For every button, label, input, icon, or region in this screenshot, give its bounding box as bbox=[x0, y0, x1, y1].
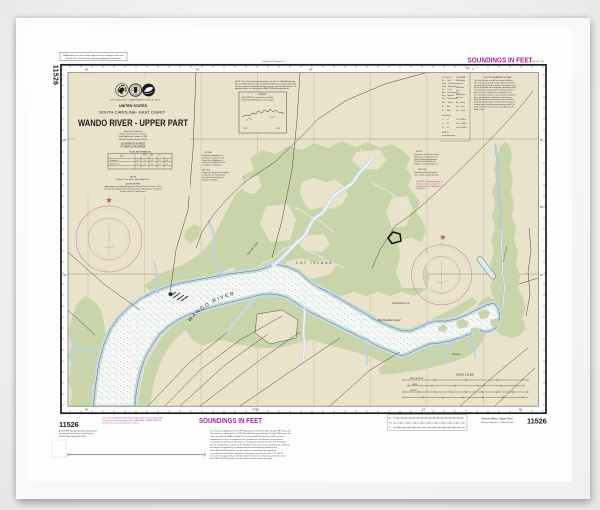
svg-text:BRIDGE: BRIDGE bbox=[259, 94, 267, 96]
svg-text:SOUNDINGS IN FEET: SOUNDINGS IN FEET bbox=[468, 57, 534, 64]
svg-text:Consult U.S. Coast Pilot 4 for: Consult U.S. Coast Pilot 4 for important… bbox=[66, 57, 122, 60]
svg-text:56': 56' bbox=[85, 67, 89, 71]
svg-text:50': 50' bbox=[63, 274, 67, 277]
svg-text:AUTHORITIES: AUTHORITIES bbox=[126, 183, 141, 186]
svg-text:56': 56' bbox=[85, 407, 89, 411]
svg-text:WANDO RIVER - UPPER PART: WANDO RIVER - UPPER PART bbox=[78, 118, 188, 128]
svg-text:Local Notice to Mariners.: Local Notice to Mariners. bbox=[202, 164, 222, 167]
svg-text:in accordance with federal reg: in accordance with federal regulations, … bbox=[210, 441, 287, 444]
svg-text:requirement to carry a navigat: requirement to carry a navigational char… bbox=[210, 438, 284, 441]
svg-text:79°55': 79°55' bbox=[252, 407, 260, 411]
svg-text:11526: 11526 bbox=[527, 417, 547, 426]
svg-text:2.6: 2.6 bbox=[159, 160, 161, 162]
svg-text:Big Paradise Island: Big Paradise Island bbox=[378, 318, 401, 322]
svg-text:in accordance with federal reg: in accordance with federal regulations i… bbox=[210, 452, 284, 455]
svg-text:S . . . . Sand: S . . . . Sand bbox=[442, 110, 450, 112]
svg-text:YDS: YDS bbox=[389, 423, 392, 425]
svg-text:SOUTH CAROLINA - EAST COAST: SOUTH CAROLINA - EAST COAST bbox=[99, 111, 165, 115]
svg-text:79°: 79° bbox=[466, 66, 470, 70]
svg-text:chart. A list of POD providers: chart. A list of POD providers can be fo… bbox=[210, 449, 276, 452]
svg-text:Mercator Projection: Mercator Projection bbox=[124, 130, 143, 133]
svg-text:Corrected through NM 26/98 (LN: Corrected through NM 26/98 (LNM 25/98) C… bbox=[102, 416, 164, 419]
svg-text:Mercator Projection — Scale 1:: Mercator Projection — Scale 1:20,000 bbox=[481, 421, 513, 424]
svg-text:SC 33 (was 1): SC 33 (was 1) bbox=[442, 77, 452, 79]
svg-text:Heights in feet above Mean Hig: Heights in feet above Mean High Water bbox=[117, 178, 150, 181]
svg-text:1 yd = 0.9144 m: 1 yd = 0.9144 m bbox=[456, 127, 468, 129]
svg-text:CAT ISLAND: CAT ISLAND bbox=[296, 261, 333, 265]
svg-text:55': 55' bbox=[540, 139, 544, 142]
svg-text:and can be recognized by an of: and can be recognized by an official emb… bbox=[210, 446, 278, 449]
svg-text:79°55': 79°55' bbox=[243, 128, 248, 130]
svg-text:1 fm = 1.8288 m: 1 fm = 1.8288 m bbox=[456, 123, 468, 125]
svg-text:11526: 11526 bbox=[51, 65, 58, 86]
svg-text:SOUNDINGS IN FEET: SOUNDINGS IN FEET bbox=[199, 418, 263, 425]
svg-text:THE NATION'S CHARTMAKER SINCE: THE NATION'S CHARTMAKER SINCE 1807 bbox=[110, 99, 161, 102]
svg-text:Engineer, Corps of Engineers.: Engineer, Corps of Engineers. bbox=[414, 164, 438, 166]
svg-text:to Mariners.: to Mariners. bbox=[416, 187, 426, 190]
svg-text:High: High bbox=[150, 155, 153, 157]
svg-text:55': 55' bbox=[196, 67, 200, 71]
svg-text:11526: 11526 bbox=[59, 420, 79, 429]
svg-text:Low Pressure Isl: Low Pressure Isl bbox=[392, 302, 410, 305]
svg-text:CAUTION: CAUTION bbox=[418, 168, 427, 171]
svg-text:North American Datum of 1983: North American Datum of 1983 bbox=[119, 135, 148, 138]
svg-text:This chart was distributed as: This chart was distributed as of TIFF (P… bbox=[210, 432, 291, 435]
svg-text:0.2: 0.2 bbox=[151, 160, 153, 162]
svg-text:Toomer: Toomer bbox=[452, 353, 460, 356]
svg-text:79°50': 79°50' bbox=[276, 128, 281, 130]
svg-text:Scale 1:20,000 at Lat. 32°50': Scale 1:20,000 at Lat. 32°50' bbox=[120, 133, 147, 136]
svg-text:■ I-526 hwy N/A fender (pr: ■ I-526 hwy N/A fender (proj const chang… bbox=[242, 98, 275, 101]
svg-text:0.0: 0.0 bbox=[166, 160, 168, 162]
svg-text:Published at Washington, D.C.: Published at Washington, D.C. bbox=[262, 60, 287, 63]
svg-text:AT MEAN LOW WATER: AT MEAN LOW WATER bbox=[120, 145, 146, 148]
svg-text:164.72, 33 164.72(a), and 46 C: 164.72, 33 164.72(a), and 46 C.F.R. 28.2… bbox=[210, 443, 290, 446]
svg-text:chart. A list of POD providers: chart. A list of POD providers can be fo… bbox=[210, 457, 272, 460]
svg-text:52': 52' bbox=[540, 206, 544, 209]
svg-text:CAUTION LIMITATIONS OF CHART: CAUTION LIMITATIONS OF CHART bbox=[484, 76, 511, 79]
svg-text:For sale by authorized agents: For sale by authorized agents of the NAT… bbox=[102, 419, 162, 422]
svg-text:54': 54' bbox=[309, 67, 313, 71]
svg-text:0.3: 0.3 bbox=[151, 163, 153, 165]
svg-text:M . . . . Mud: M . . . . Mud bbox=[442, 106, 450, 108]
svg-text:This chart was distributed as: This chart was distributed as of TIFF (P… bbox=[210, 429, 291, 432]
svg-text:■ WD FIXED 65 ft clearance: ■ WD FIXED 65 ft clearance (hor cl 400 f… bbox=[242, 96, 274, 99]
svg-text:Rky . . Rocky: Rky . . Rocky bbox=[456, 102, 465, 104]
svg-text:NOAA advises use of this chart: NOAA advises use of this chart's largest… bbox=[63, 54, 124, 57]
svg-text:5.2: 5.2 bbox=[137, 163, 139, 165]
svg-text:0.0: 0.0 bbox=[166, 163, 168, 165]
svg-text:HEIGHTS: HEIGHTS bbox=[442, 132, 449, 134]
svg-text:the National Ocean Service, Co: the National Ocean Service, Coast Survey… bbox=[59, 432, 94, 435]
svg-text:CAUTION: CAUTION bbox=[202, 168, 211, 171]
svg-text:SCALE 1:20,000: SCALE 1:20,000 bbox=[456, 373, 474, 376]
svg-text:METERS: METERS bbox=[410, 390, 417, 392]
svg-text:55': 55' bbox=[63, 139, 67, 142]
svg-text:ACTIVITIES requiring chart dat: ACTIVITIES requiring chart data should c… bbox=[59, 430, 97, 433]
svg-text:5.1: 5.1 bbox=[137, 160, 139, 162]
svg-text:Mean: Mean bbox=[143, 155, 147, 157]
svg-text:12 . . . 2.0: 12 . . . 2.0 bbox=[442, 127, 449, 129]
svg-text:exist outside charted channels: exist outside charted channels. bbox=[414, 173, 439, 176]
svg-text:Hk . . . . Hulk: Hk . . . . Hulk bbox=[442, 80, 451, 82]
svg-text:charts provided by NOAA certif: charts provided by NOAA certified Print … bbox=[210, 435, 284, 438]
svg-text:1 . . . . 0.2: 1 . . . . 0.2 bbox=[442, 119, 449, 121]
svg-text:5.6: 5.6 bbox=[144, 163, 146, 165]
svg-text:50': 50' bbox=[540, 274, 544, 277]
svg-text:UNITED STATES: UNITED STATES bbox=[119, 104, 148, 108]
svg-text:N/CS26, Silver Spring, MD 2091: N/CS26, Silver Spring, MD 20910 bbox=[59, 436, 86, 438]
svg-text:50': 50' bbox=[519, 407, 523, 411]
svg-text:Survey, and U.S. Coast Guard.: Survey, and U.S. Coast Guard. bbox=[120, 190, 146, 193]
svg-text:and can be recognized by an of: and can be recognized by an official emb… bbox=[210, 455, 285, 458]
svg-text:positions shown are referenced: positions shown are referenced to NAD 19… bbox=[235, 87, 290, 90]
svg-text:and the U.S. Coast Guard Distr: and the U.S. Coast Guard District Office… bbox=[102, 422, 138, 425]
svg-text:2.7: 2.7 bbox=[159, 163, 161, 165]
svg-text:6 . . . . 1.0: 6 . . . . 1.0 bbox=[442, 123, 449, 125]
svg-text:53': 53' bbox=[422, 407, 426, 411]
svg-text:Place: Place bbox=[120, 155, 124, 157]
svg-text:NOTE A: NOTE A bbox=[205, 151, 212, 154]
svg-text:5.5: 5.5 bbox=[144, 160, 146, 162]
svg-text:(World Geodetic System 1984): (World Geodetic System 1984) bbox=[119, 138, 148, 141]
svg-text:TIDAL INFORMATION: TIDAL INFORMATION bbox=[129, 150, 151, 153]
svg-text:Mariners for details.: Mariners for details. bbox=[202, 178, 218, 181]
svg-text:Wando River, Upper Part: Wando River, Upper Part bbox=[482, 416, 513, 420]
svg-text:NOTE C: NOTE C bbox=[416, 151, 423, 153]
